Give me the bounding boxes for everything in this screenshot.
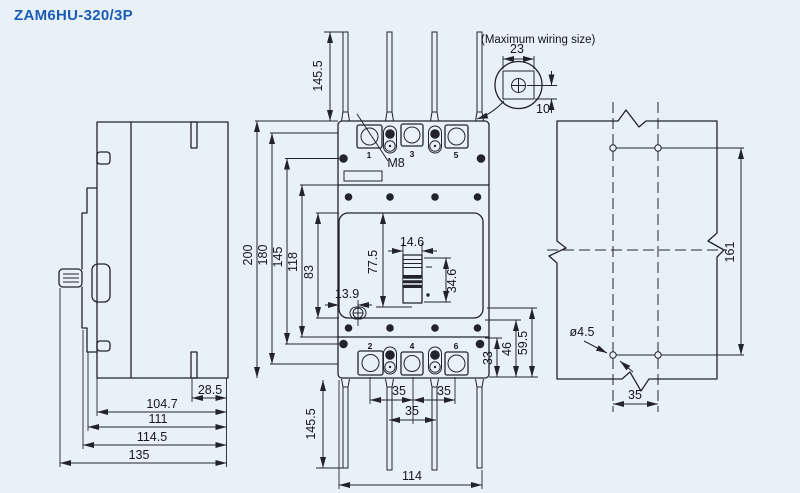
pole-number-2: 2 <box>368 341 373 351</box>
dim-side-depth-mid: 111 <box>148 412 167 426</box>
dim-side-slot: 28.5 <box>198 383 222 397</box>
off-mark <box>426 293 429 296</box>
dim-r59: 59.5 <box>516 331 530 355</box>
wiring-note: (Maximum wiring size) <box>481 34 596 46</box>
side-top-tab <box>97 152 110 164</box>
dim-wire-width: 23 <box>510 42 524 56</box>
dim-handle-window: 77.5 <box>366 250 380 274</box>
detail-leader <box>477 101 504 119</box>
top-connection-bars <box>342 32 484 121</box>
dim-h118: 118 <box>286 252 300 272</box>
dim-hole-span: 161 <box>723 242 737 263</box>
dim-side-depth-front: 114.5 <box>137 430 167 444</box>
technical-drawing: ZAM6HU-320/3P 28.5 104.7 111 114.5 <box>0 0 800 493</box>
dim-h83: 83 <box>302 265 316 279</box>
side-top-slot <box>191 122 197 148</box>
dim-button-offset: 13.9 <box>335 287 359 301</box>
side-bottom-tab <box>97 341 110 351</box>
wiring-detail: (Maximum wiring size) 23 10 <box>477 34 596 119</box>
barrier-screw <box>384 347 397 374</box>
side-handle-escutcheon <box>92 264 110 302</box>
dim-pitch-c: 35 <box>405 404 419 418</box>
dim-h180: 180 <box>256 245 270 266</box>
side-cover-profile-upper <box>82 188 97 269</box>
drill-view: 161 ø4.5 35 <box>547 102 744 412</box>
dim-bottom-bar-length: 145.5 <box>304 408 318 439</box>
top-terminals: 1 3 5 <box>357 124 468 160</box>
toggle-handle <box>403 255 432 303</box>
barrier-screw <box>429 347 442 374</box>
side-toggle-handle <box>59 269 82 287</box>
bottom-terminals: 2 4 6 <box>358 341 468 375</box>
dim-handle-width: 14.6 <box>400 235 424 249</box>
dim-hole-pitch: 35 <box>628 388 642 402</box>
nameplate <box>344 171 382 181</box>
dim-side-depth-overall: 135 <box>129 448 150 462</box>
dim-bottom-width: 114 <box>402 469 422 483</box>
dim-pitch-b: 35 <box>437 384 451 398</box>
side-body-outline <box>97 122 228 378</box>
pole-number-3: 3 <box>410 149 415 159</box>
front-view: 1 3 5 2 4 6 <box>241 32 538 489</box>
dim-h200: 200 <box>241 245 255 266</box>
dim-r46: 46 <box>500 342 514 356</box>
terminal-screw-label: M8 <box>387 156 404 170</box>
side-view: 28.5 104.7 111 114.5 135 <box>59 122 228 467</box>
dim-side-body-depth: 104.7 <box>146 397 177 411</box>
dim-handle-height: 34.6 <box>445 269 459 293</box>
dim-wire-depth: 10 <box>536 102 550 116</box>
drawing-canvas: ZAM6HU-320/3P 28.5 104.7 111 114.5 <box>0 0 800 493</box>
side-cover-profile-lower <box>82 287 97 352</box>
side-bottom-slot <box>191 352 197 378</box>
dim-h145: 145 <box>271 247 285 268</box>
hole-diameter-label: ø4.5 <box>569 325 594 339</box>
pole-number-6: 6 <box>454 341 459 351</box>
pole-number-5: 5 <box>454 150 459 160</box>
bottom-connection-bars <box>342 379 484 470</box>
pole-number-1: 1 <box>367 150 372 160</box>
barrier-screw <box>429 126 442 153</box>
pole-number-4: 4 <box>410 341 415 351</box>
barrier-screw <box>384 126 397 153</box>
mounting-holes <box>610 145 661 358</box>
dim-top-bar-length: 145.5 <box>311 60 325 91</box>
page-title: ZAM6HU-320/3P <box>14 7 133 24</box>
wire-cross-section <box>511 78 526 93</box>
escutcheon <box>339 213 483 318</box>
dim-pitch-a: 35 <box>392 384 406 398</box>
dim-r33: 33 <box>481 351 495 365</box>
hole-leader <box>584 341 607 353</box>
hole-leader <box>620 361 633 372</box>
front-body-outline <box>338 121 489 378</box>
